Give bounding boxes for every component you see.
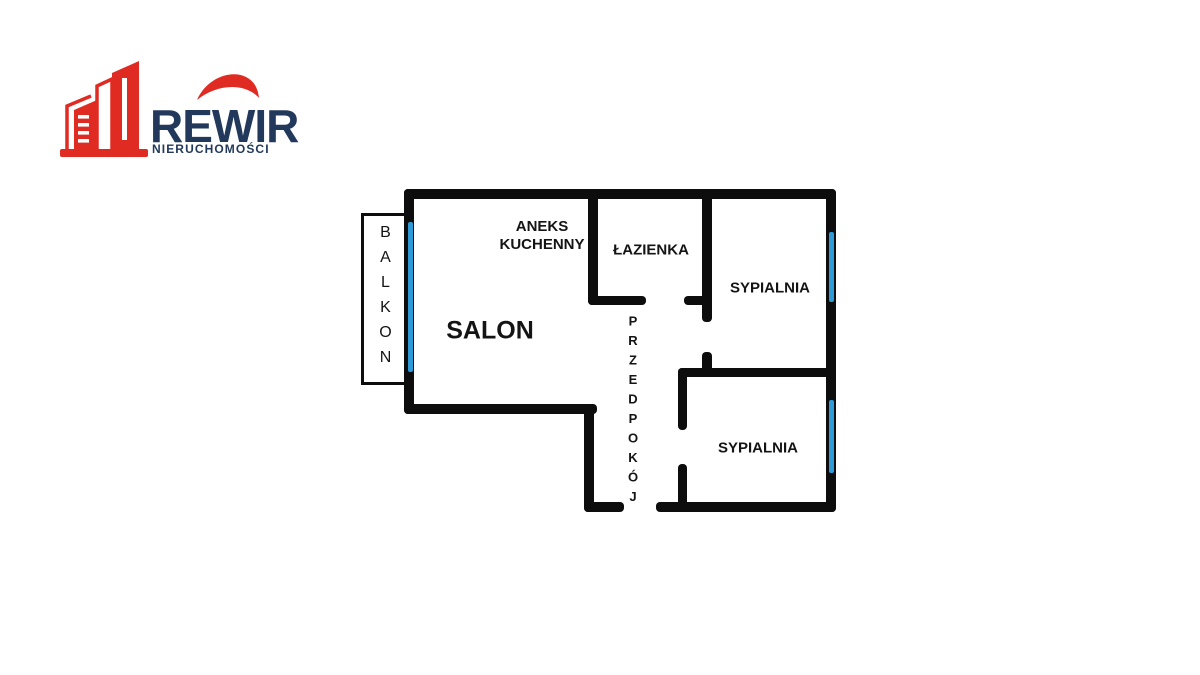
room-label-przedpokoj: PRZEDPOKÓJ xyxy=(626,314,641,509)
wall-bathroom-left xyxy=(588,189,598,305)
room-label-lazienka: ŁAZIENKA xyxy=(613,242,689,259)
room-label-balkon: BALKON xyxy=(376,224,394,374)
swoosh-icon xyxy=(196,71,260,103)
aneks-line1: ANEKS xyxy=(516,218,569,235)
buildings-icon xyxy=(58,58,150,160)
wall-bedroom-bottom-left-upper xyxy=(678,368,687,430)
wall-bathroom-bottom-left xyxy=(588,296,646,305)
window-balcony xyxy=(408,222,413,372)
wall-bedrooms-divider xyxy=(678,368,836,377)
wall-bottom-left-of-entry xyxy=(584,502,624,512)
wall-bedroom-bottom-left-lower xyxy=(678,464,687,512)
wall-top xyxy=(404,189,836,199)
room-label-aneks-kuchenny: ANEKS KUCHENNY xyxy=(499,218,584,254)
floorplan-page: REWIR NIERUCHOMOŚCI BALKON SALON A xyxy=(0,0,1200,675)
wall-salon-bottom xyxy=(404,404,597,414)
window-bedroom-top xyxy=(829,232,834,302)
window-bedroom-bottom xyxy=(829,400,834,473)
aneks-line2: KUCHENNY xyxy=(499,236,584,253)
wall-bathroom-right xyxy=(702,189,712,322)
room-label-sypialnia-top: SYPIALNIA xyxy=(730,280,810,297)
room-label-sypialnia-bottom: SYPIALNIA xyxy=(718,440,798,457)
wall-hall-left xyxy=(584,404,594,512)
brand-subtitle: NIERUCHOMOŚCI xyxy=(152,142,270,156)
rewir-logo: REWIR NIERUCHOMOŚCI xyxy=(0,0,320,180)
room-label-salon: SALON xyxy=(446,317,534,346)
